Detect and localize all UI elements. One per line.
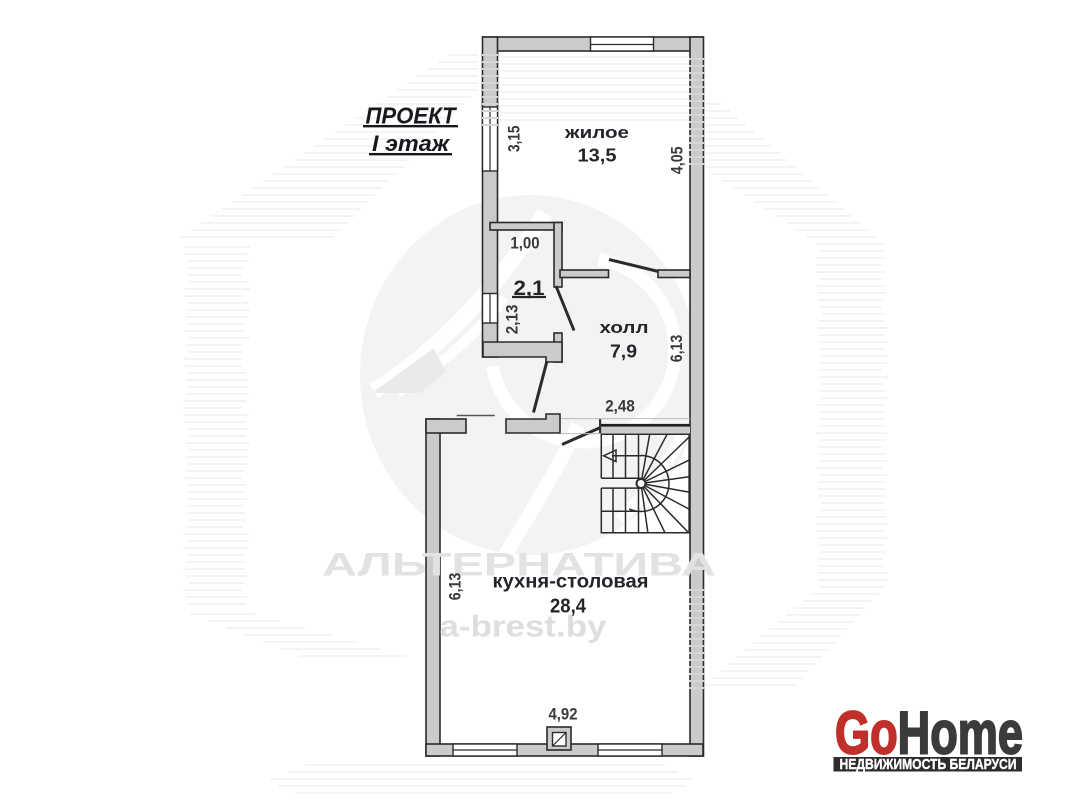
svg-text:7,9: 7,9	[610, 341, 637, 362]
svg-text:13,5: 13,5	[578, 146, 617, 166]
svg-text:4,05: 4,05	[668, 146, 687, 174]
svg-text:3,15: 3,15	[505, 126, 524, 153]
svg-text:ПРОЕКТ: ПРОЕКТ	[366, 102, 458, 128]
svg-text:холл: холл	[600, 318, 649, 337]
svg-text:жилое: жилое	[564, 123, 629, 142]
svg-text:6,13: 6,13	[667, 335, 686, 363]
svg-text:6,13: 6,13	[446, 573, 465, 601]
svg-text:НЕДВИЖИМОСТЬ БЕЛАРУСИ: НЕДВИЖИМОСТЬ БЕЛАРУСИ	[840, 756, 1017, 773]
svg-text:28,4: 28,4	[550, 596, 587, 618]
svg-text:4,92: 4,92	[549, 705, 578, 724]
svg-text:кухня-столовая: кухня-столовая	[493, 572, 649, 593]
svg-text:1,00: 1,00	[510, 234, 539, 253]
svg-text:2,48: 2,48	[605, 397, 635, 416]
svg-text:2,13: 2,13	[503, 305, 522, 335]
svg-text:I этаж: I этаж	[372, 131, 450, 156]
